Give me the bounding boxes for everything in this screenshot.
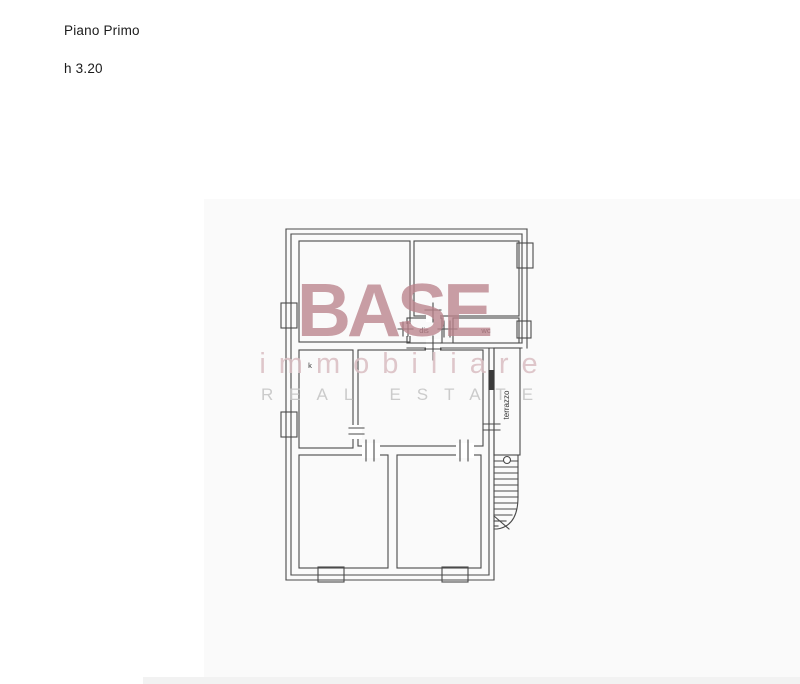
floor-plan-drawing: dis wc k terrazzo BASE immobiliare REAL … xyxy=(0,0,800,684)
floor-plan-page: Piano Primo h 3.20 xyxy=(0,0,800,684)
watermark-tagline-text: REAL ESTATE xyxy=(261,385,549,404)
watermark-subtitle-text: immobiliare xyxy=(259,348,550,380)
bottom-strip xyxy=(143,677,800,684)
watermark-brand-text: BASE xyxy=(297,268,491,352)
faint-backdrop xyxy=(204,199,800,684)
stair-newel-circle xyxy=(504,457,511,464)
